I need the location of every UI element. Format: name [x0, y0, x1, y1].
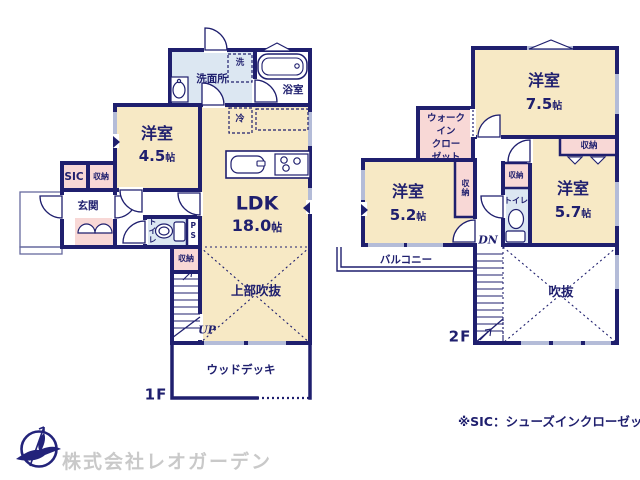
bedroom45-size: 4.5帖: [139, 148, 176, 164]
bedroom75-name: 洋室: [528, 73, 560, 89]
closet57-label: 収納: [580, 142, 597, 151]
bedroom45-name: 洋室: [141, 126, 173, 142]
company-name: 株式会社レオガーデン: [62, 447, 272, 474]
bedroom52-name: 洋室: [392, 184, 424, 200]
ldk-size-unit: 帖: [271, 221, 282, 234]
balcony-label: バルコニー: [380, 255, 432, 266]
toilet-label-2f: トイレ: [504, 197, 528, 205]
washbasin-icon: [171, 77, 188, 102]
bedroom57-size: 5.7帖: [555, 204, 592, 220]
entrance-closet-label: 収納: [93, 173, 109, 181]
floorplan-page: 洗面所 洗 浴室 冷 洋室 4.5帖 SIC 収納 玄関 LDK 18.0帖 ト…: [0, 0, 640, 480]
bedroom57-size-num: 5.7: [555, 203, 582, 221]
void-label: 吹抜: [548, 286, 573, 299]
wic-line-4: ゼット: [427, 151, 465, 164]
bedroom75-size-num: 7.5: [526, 95, 553, 113]
closet52-label: 収納: [461, 179, 469, 197]
closet-center-label: 収納: [509, 171, 524, 179]
wood-deck-label: ウッドデッキ: [207, 364, 276, 376]
stairs-down-label: DN: [478, 235, 498, 246]
ldk-name: LDK: [236, 195, 279, 214]
toilet-label-1f: トイレ: [148, 218, 156, 245]
washroom-label: 洗面所: [196, 74, 228, 85]
bedroom52-size-unit: 帖: [416, 212, 426, 223]
washer-label: 洗: [236, 59, 245, 68]
sic-label: SIC: [64, 172, 83, 183]
fridge-label: 冷: [235, 116, 244, 125]
ldk-size-num: 18.0: [232, 216, 271, 235]
bedroom75-size: 7.5帖: [526, 96, 563, 112]
upper-void-label: 上部吹抜: [231, 285, 281, 298]
kitchen-counter: [226, 151, 310, 178]
bedroom75-size-unit: 帖: [552, 101, 562, 112]
wall-notches-2f: [359, 202, 368, 216]
bathtub-icon: [258, 54, 307, 79]
bay-window-chevron-2f: [529, 40, 573, 49]
bedroom57-name: 洋室: [557, 181, 589, 197]
bay-window-chevron-1f: [262, 43, 292, 51]
floor2-tag: 2F: [449, 330, 472, 345]
sic-footnote: ※SIC：シューズインクローゼット: [458, 411, 640, 430]
stairs-up-label: UP: [198, 325, 216, 336]
wic-line-3: クロー: [427, 138, 465, 151]
stairs-closet-label: 収納: [178, 255, 194, 263]
bedroom45-size-num: 4.5: [139, 147, 166, 165]
bathroom-label: 浴室: [283, 85, 304, 96]
wic-line-1: ウォーク: [427, 112, 465, 125]
floor1-tag: 1F: [145, 388, 168, 403]
ps-label: PS: [189, 221, 197, 241]
bedroom57-size-unit: 帖: [581, 209, 591, 220]
stairs-2f: [475, 254, 503, 343]
wic-label: ウォーク イン クロー ゼット: [427, 112, 465, 164]
bedroom52-size: 5.2帖: [390, 207, 427, 223]
wic-line-2: イン: [427, 125, 465, 138]
bedroom52-size-num: 5.2: [390, 206, 417, 224]
bedroom45-size-unit: 帖: [165, 153, 175, 164]
company-logo: [16, 427, 61, 467]
ldk-size: 18.0帖: [232, 218, 282, 234]
entrance-label: 玄関: [78, 201, 99, 212]
